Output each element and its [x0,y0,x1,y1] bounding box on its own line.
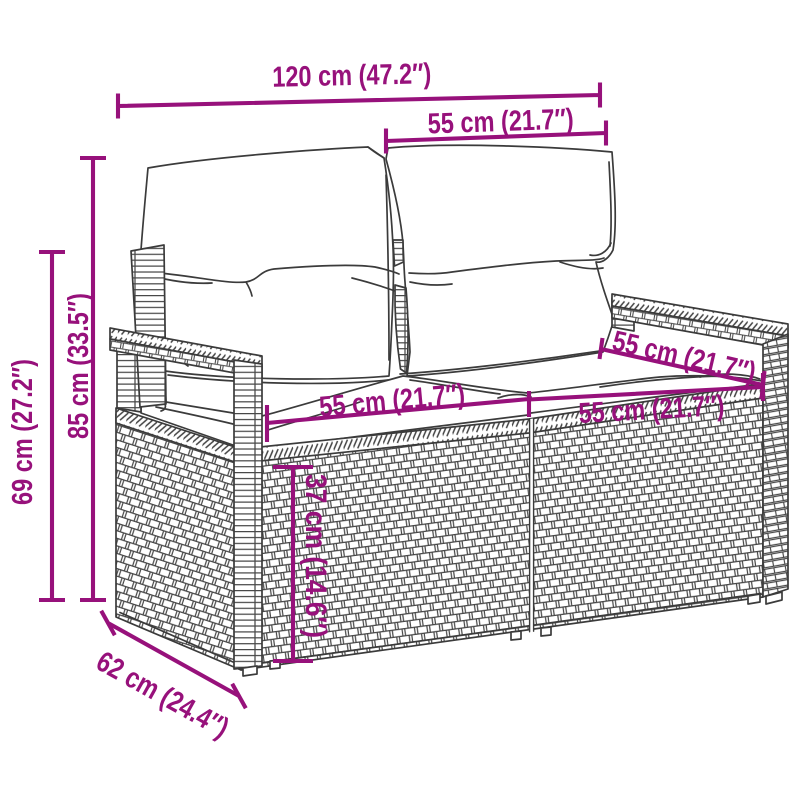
svg-text:55 cm (21.7″): 55 cm (21.7″) [427,103,574,140]
svg-text:85 cm (33.5″): 85 cm (33.5″) [63,293,95,439]
svg-text:37 cm (14.6″): 37 cm (14.6″) [299,474,332,638]
svg-text:120 cm (47.2″): 120 cm (47.2″) [272,58,432,94]
svg-text:69 cm (27.2″): 69 cm (27.2″) [7,359,39,505]
